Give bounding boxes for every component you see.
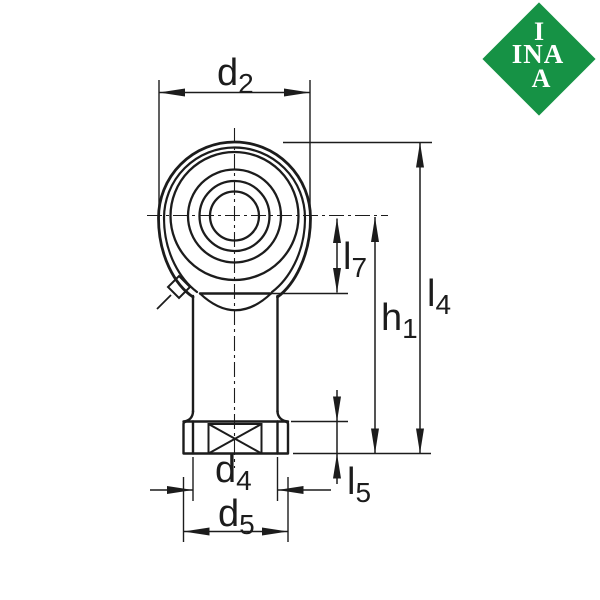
- d4-arrow-right: [278, 486, 304, 494]
- lubrication-diamond: [168, 276, 190, 298]
- shank-and-flange: [184, 296, 289, 454]
- drawing-canvas: d2 l7 h1 l4 l5 d4: [0, 0, 600, 600]
- l4-arrow-up: [416, 143, 424, 168]
- dimension-d4: d4: [150, 449, 331, 501]
- d2-label: d2: [217, 52, 254, 99]
- d5-arrow-left: [184, 528, 210, 536]
- d5-arrow-right: [262, 528, 288, 536]
- dimension-h1: h1: [371, 217, 418, 454]
- ina-logo: I INA A: [482, 2, 595, 115]
- l7-arrow-up: [333, 219, 341, 244]
- d2-arrow-left: [159, 89, 185, 97]
- l7-arrow-down: [333, 268, 341, 293]
- rod-end-technical-drawing: d2 l7 h1 l4 l5 d4: [0, 0, 600, 600]
- d4-arrow-left: [167, 486, 193, 494]
- shank-right-fillet: [278, 411, 289, 422]
- l7-label: l7: [343, 236, 367, 283]
- h1-label: h1: [381, 297, 418, 344]
- dimension-l4: l4: [283, 143, 451, 454]
- shank-left-fillet: [184, 411, 194, 422]
- l4-label: l4: [427, 273, 451, 320]
- lubrication-stub-line: [157, 295, 171, 309]
- head-bottom-arc: [200, 294, 271, 311]
- l5-label: l5: [347, 461, 371, 508]
- h1-arrow-down: [371, 429, 379, 454]
- lubrication-hole-symbol: [157, 276, 190, 309]
- ina-logo-letter-bottom: A: [532, 64, 551, 93]
- d4-label: d4: [215, 449, 252, 496]
- d5-label: d5: [218, 493, 255, 540]
- d2-arrow-right: [284, 89, 310, 97]
- l4-arrow-down: [416, 429, 424, 454]
- rod-end-head: [157, 142, 311, 310]
- l5-arrow-down: [333, 397, 341, 422]
- l5-arrow-up: [333, 454, 341, 479]
- h1-arrow-up: [371, 217, 379, 242]
- dimension-l7: l7: [272, 219, 367, 294]
